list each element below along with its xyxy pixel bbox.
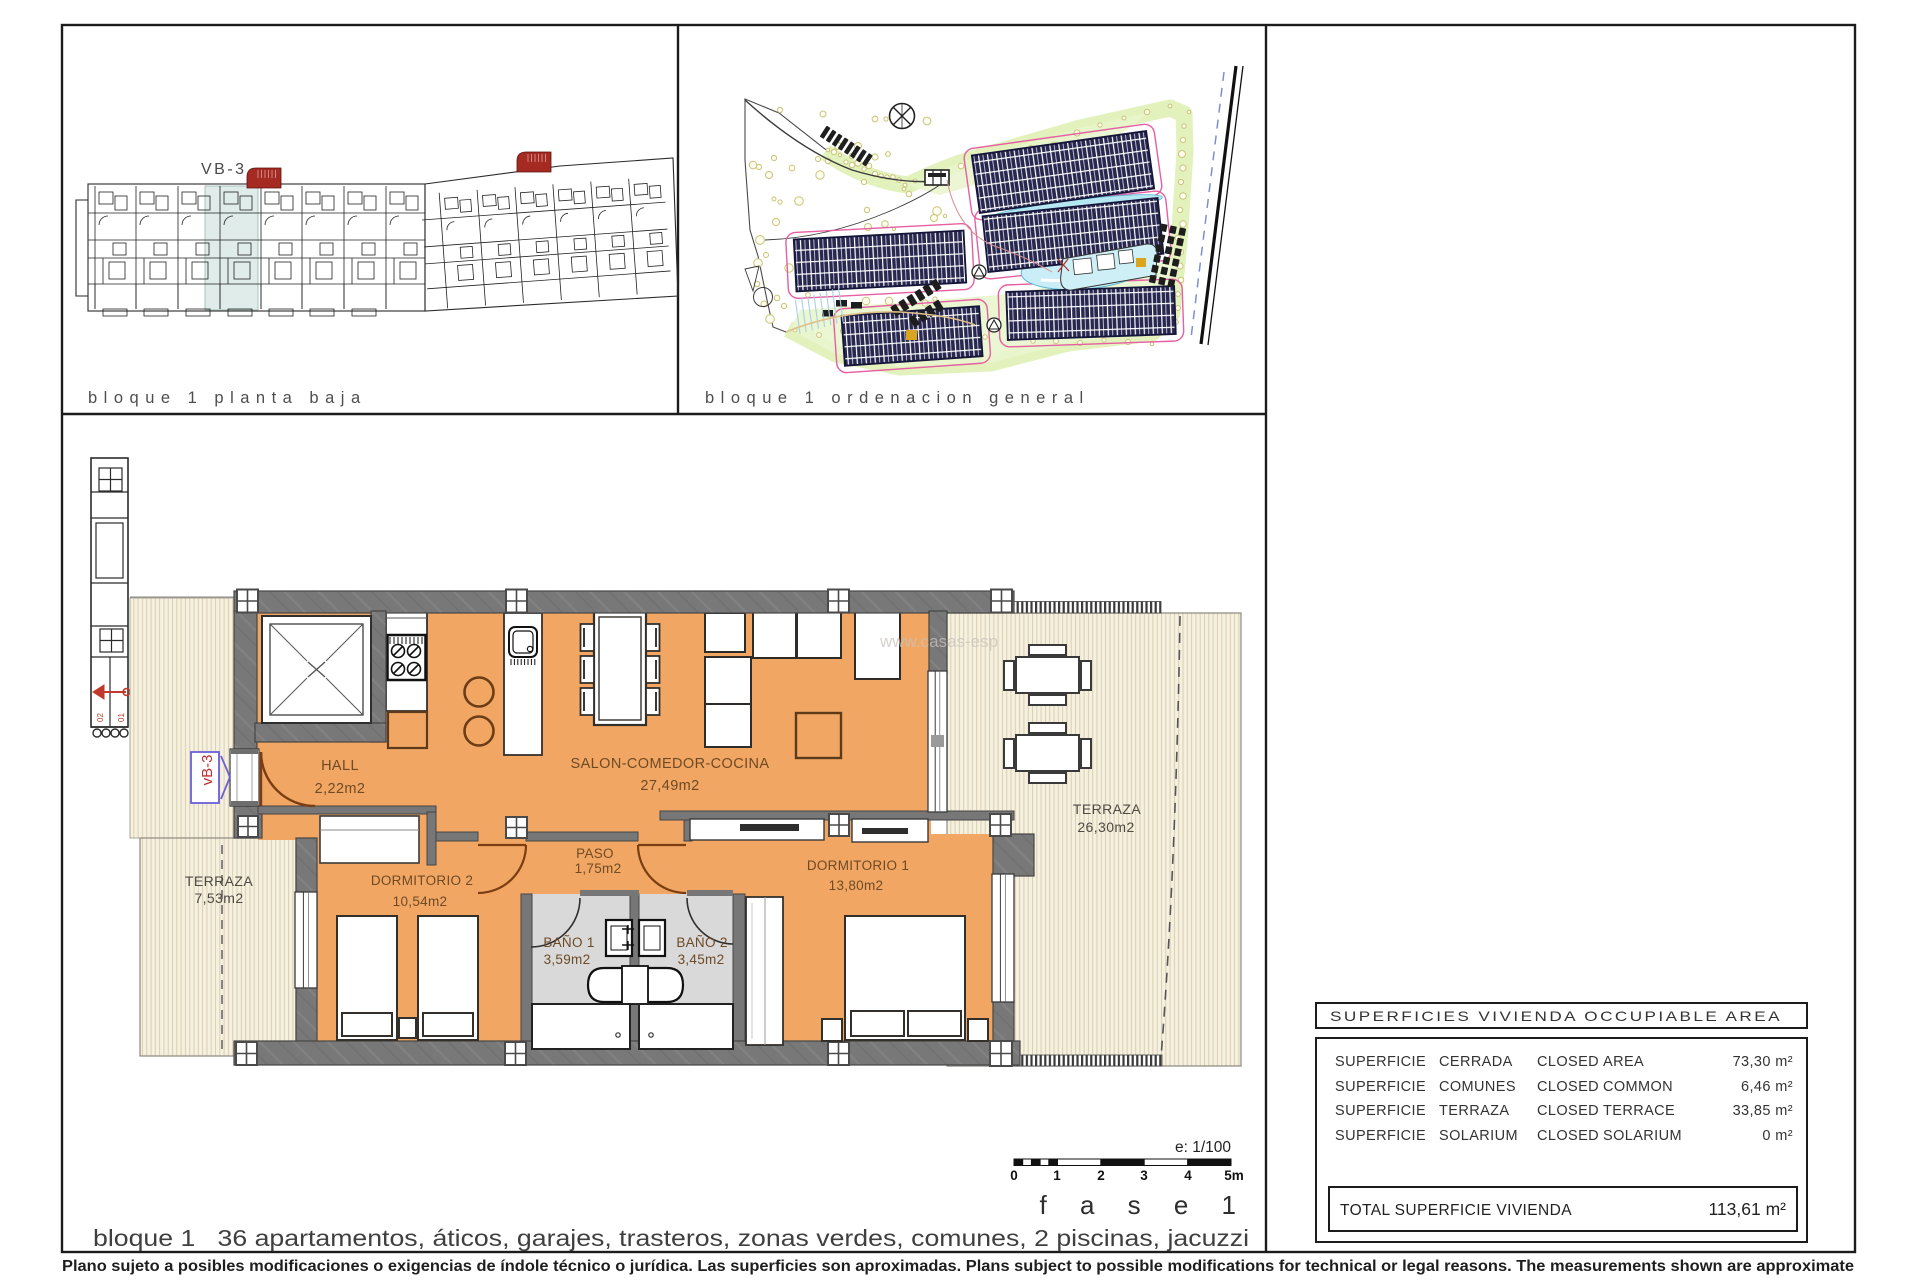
svg-text:SUPERFICIE: SUPERFICIE	[1335, 1128, 1426, 1144]
svg-text:www.casas-esp: www.casas-esp	[879, 632, 998, 651]
svg-text:6,46 m²: 6,46 m²	[1741, 1079, 1793, 1095]
svg-text:0: 0	[1010, 1168, 1018, 1183]
svg-text:TERRAZA: TERRAZA	[185, 873, 253, 889]
svg-text:TERRAZA: TERRAZA	[1439, 1103, 1509, 1119]
svg-text:3,59m2: 3,59m2	[544, 952, 591, 967]
svg-text:DORMITORIO 1: DORMITORIO 1	[807, 858, 909, 873]
svg-text:Plano sujeto a posibles modifi: Plano sujeto a posibles modificaciones o…	[62, 1258, 1854, 1275]
svg-text:10,54m2: 10,54m2	[393, 894, 448, 909]
svg-text:BAÑO 2: BAÑO 2	[676, 935, 727, 950]
svg-text:1,75m2: 1,75m2	[575, 861, 622, 876]
svg-text:HALL: HALL	[321, 758, 359, 774]
svg-text:PASO: PASO	[576, 846, 614, 861]
svg-text:27,49m2: 27,49m2	[640, 778, 699, 794]
svg-text:e: 1/100: e: 1/100	[1175, 1139, 1231, 1156]
svg-text:AREA: AREA	[1603, 1054, 1644, 1070]
svg-text:bloque 1 planta baja: bloque 1 planta baja	[88, 389, 367, 407]
svg-text:TOTAL SUPERFICIE VIVIENDA: TOTAL SUPERFICIE VIVIENDA	[1340, 1202, 1572, 1219]
svg-text:7,53m2: 7,53m2	[194, 890, 243, 906]
svg-text:13,80m2: 13,80m2	[829, 878, 884, 893]
svg-text:SOLARIUM: SOLARIUM	[1439, 1128, 1518, 1144]
svg-text:CERRADA: CERRADA	[1439, 1054, 1513, 1070]
svg-text:4: 4	[1184, 1168, 1192, 1183]
svg-text:2: 2	[1097, 1168, 1105, 1183]
svg-text:f a s e 1: f a s e 1	[1040, 1190, 1250, 1220]
svg-text:113,61 m²: 113,61 m²	[1709, 1199, 1787, 1219]
svg-text:SUPERFICIE: SUPERFICIE	[1335, 1079, 1426, 1095]
svg-text:DORMITORIO 2: DORMITORIO 2	[371, 873, 473, 888]
svg-text:CLOSED: CLOSED	[1537, 1103, 1599, 1119]
svg-text:SUPERFICIE: SUPERFICIE	[1335, 1054, 1426, 1070]
svg-text:0 m²: 0 m²	[1762, 1128, 1793, 1144]
svg-text:SOLARIUM: SOLARIUM	[1603, 1128, 1682, 1144]
svg-text:3,45m2: 3,45m2	[678, 952, 725, 967]
svg-text:1: 1	[1053, 1168, 1061, 1183]
svg-text:SUPERFICIE: SUPERFICIE	[1335, 1103, 1426, 1119]
svg-text:vB-3: vB-3	[199, 755, 216, 786]
svg-text:COMMON: COMMON	[1603, 1079, 1673, 1095]
svg-text:26,30m2: 26,30m2	[1077, 819, 1134, 835]
svg-text:73,30 m²: 73,30 m²	[1733, 1054, 1793, 1070]
svg-text:5m: 5m	[1224, 1168, 1244, 1183]
svg-text:33,85 m²: 33,85 m²	[1733, 1103, 1793, 1119]
svg-text:TERRACE: TERRACE	[1603, 1103, 1675, 1119]
svg-text:3: 3	[1140, 1168, 1148, 1183]
svg-text:SUPERFICIES VIVIENDA OCCUPIABL: SUPERFICIES VIVIENDA OCCUPIABLE AREA	[1330, 1008, 1782, 1024]
svg-text:CLOSED: CLOSED	[1537, 1054, 1599, 1070]
svg-text:TERRAZA: TERRAZA	[1073, 801, 1141, 817]
svg-text:VB-3: VB-3	[201, 161, 247, 178]
svg-text:COMUNES: COMUNES	[1439, 1079, 1516, 1095]
svg-text:02: 02	[96, 713, 105, 722]
svg-text:CLOSED: CLOSED	[1537, 1128, 1599, 1144]
svg-text:SALON-COMEDOR-COCINA: SALON-COMEDOR-COCINA	[571, 756, 770, 772]
svg-text:BAÑO 1: BAÑO 1	[543, 935, 594, 950]
svg-text:bloque 1 ordenacion general: bloque 1 ordenacion general	[705, 389, 1090, 407]
svg-text:bloque 1 36 apartamentos, át: bloque 1 36 apartamentos, áticos, garaje…	[93, 1225, 1249, 1251]
svg-text:01: 01	[117, 713, 126, 722]
svg-text:CLOSED: CLOSED	[1537, 1079, 1599, 1095]
svg-text:2,22m2: 2,22m2	[315, 781, 366, 797]
